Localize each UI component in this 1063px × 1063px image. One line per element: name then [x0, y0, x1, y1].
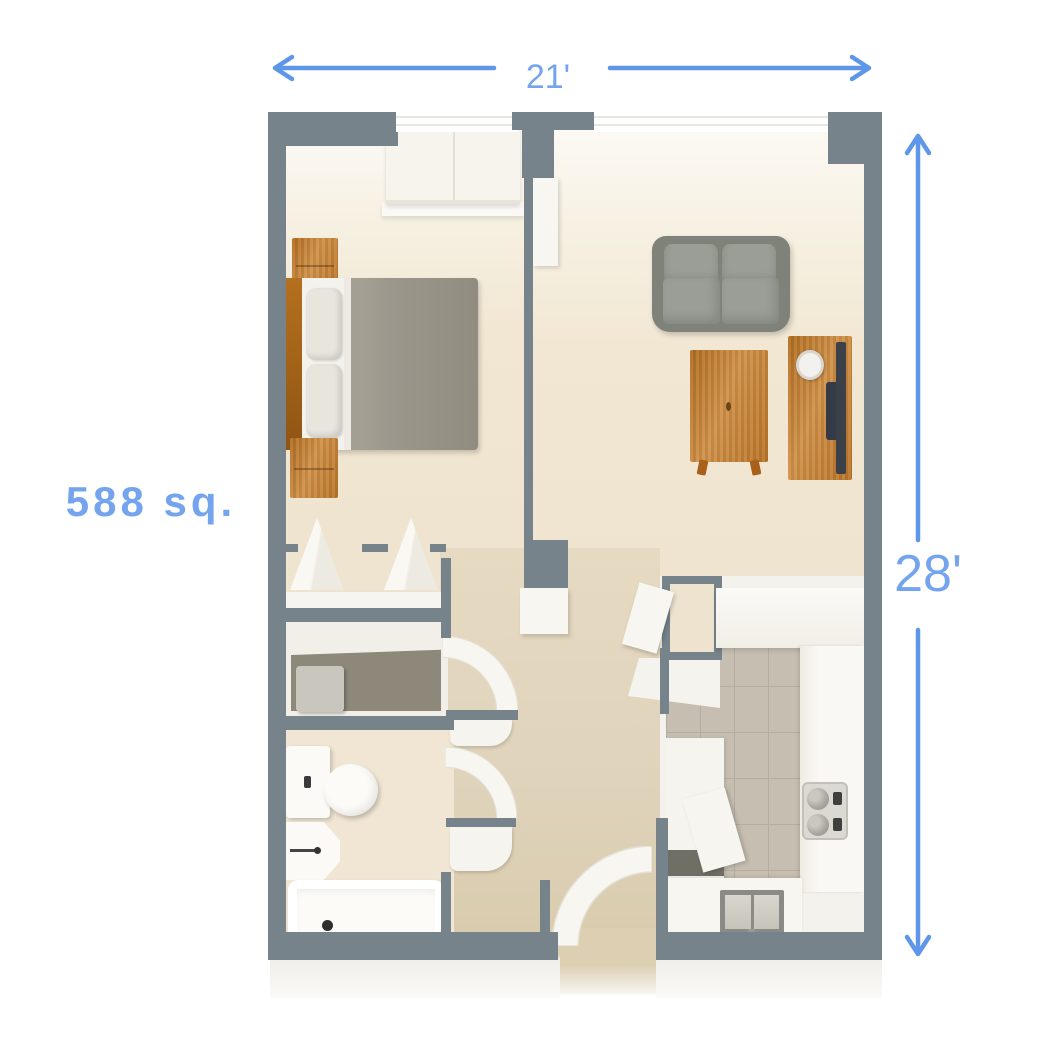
wardrobe-trim: [382, 202, 524, 216]
height-dimension-label: 28': [876, 544, 980, 604]
stove-knob: [833, 792, 842, 805]
wall-right: [864, 112, 882, 960]
desk-lamp: [796, 350, 824, 380]
laundry-basket: [296, 666, 344, 712]
bedroom-wardrobe: [386, 126, 520, 204]
entry-door-jamb: [540, 880, 550, 960]
stove-burner: [807, 814, 829, 836]
toilet-flush-slot: [304, 776, 311, 788]
tv-screen: [836, 342, 846, 474]
floor-plan-canvas: 21' 28' 588 sq.: [0, 0, 1063, 1063]
table-wood-knot: [726, 402, 731, 411]
bed-pillow: [306, 288, 342, 360]
kitchen-wall-left: [656, 818, 668, 960]
table-leg: [750, 459, 762, 476]
wall-top-left: [268, 112, 398, 146]
wall-divider-foot: [524, 540, 568, 588]
side-table: [690, 350, 768, 462]
bed-blanket: [344, 278, 478, 450]
bed-headboard: [286, 278, 302, 450]
nightstand-bottom: [290, 438, 338, 498]
closet-wall-stub: [362, 544, 388, 552]
wall-bottom-left: [268, 932, 558, 960]
closet-wall-stub: [284, 544, 298, 552]
area-label: 588 sq.: [44, 478, 258, 526]
toilet-tank: [286, 746, 330, 818]
wall-top-right: [828, 112, 882, 164]
sofa-seat-cushion: [663, 278, 720, 324]
window-bedroom: [396, 112, 518, 132]
closet-wall-stub: [430, 544, 446, 552]
hallway-wall-stub: [446, 818, 516, 827]
foundation-right: [656, 956, 882, 998]
bed-pillow: [306, 364, 342, 438]
corner-pantry: [662, 576, 722, 660]
wall-center-divider: [524, 126, 533, 562]
kitchen-counter-right: [800, 646, 864, 892]
sofa-seat-cushion: [722, 278, 779, 324]
laundry-wall: [284, 608, 448, 622]
width-dimension-label: 21': [478, 58, 618, 97]
bathtub-drain: [322, 920, 333, 931]
hallway-wall-stub: [446, 710, 518, 720]
closet-door-swing: [442, 636, 518, 712]
stove-cooktop: [802, 782, 848, 840]
divider-cabinet-top: [533, 178, 558, 266]
hallway-wall-lower: [441, 872, 451, 960]
hallway-wall-upper: [441, 558, 451, 638]
toilet-bowl: [324, 764, 378, 816]
bathroom-door-swing: [445, 746, 517, 820]
sink-basin: [754, 895, 780, 929]
stove-burner: [807, 788, 829, 810]
foundation-left: [270, 956, 560, 998]
stove-knob: [833, 818, 842, 831]
sink-basin: [725, 895, 751, 929]
divider-cabinet-bottom: [520, 588, 568, 634]
kitchen-wall-left-mid: [660, 648, 669, 714]
sofa: [652, 236, 790, 332]
entry-door-swing: [552, 846, 652, 946]
laundry-closet-face: [291, 618, 441, 655]
kitchen-sink: [720, 890, 784, 934]
bathroom-wall-top: [268, 716, 454, 730]
wall-bottom-right: [658, 932, 882, 960]
wall-left: [268, 112, 286, 960]
kitchen-counter-top: [716, 588, 864, 648]
laundry-closet: [284, 622, 448, 718]
window-living-room: [594, 112, 828, 132]
bathroom-door-panel: [450, 827, 512, 871]
sink-faucet: [290, 849, 318, 852]
